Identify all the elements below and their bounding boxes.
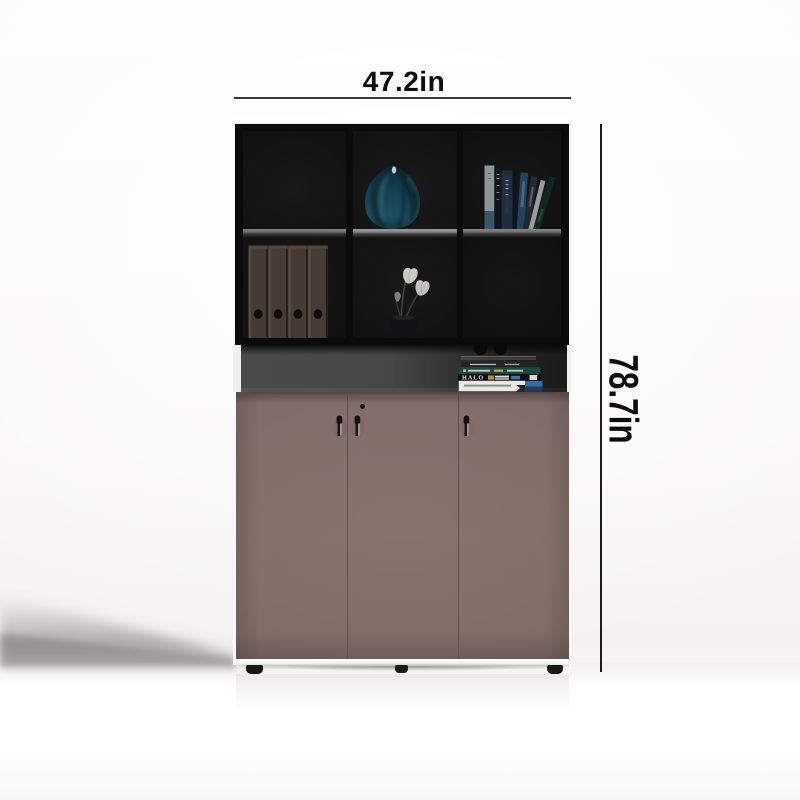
svg-text:HALO: HALO — [462, 375, 484, 382]
